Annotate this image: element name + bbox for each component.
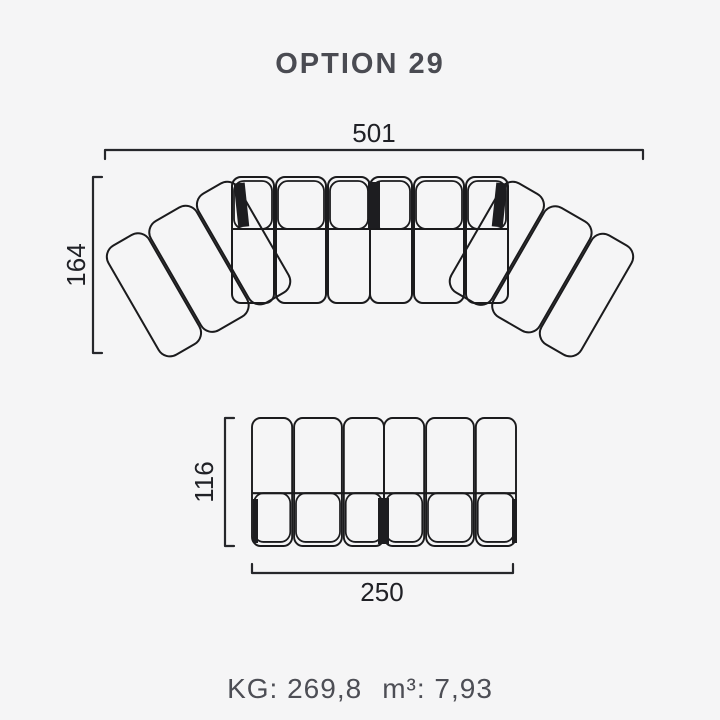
weight-volume-footer: KG: 269,8 m³: 7,93	[0, 673, 720, 705]
dimension-label: 116	[189, 461, 219, 502]
module-junction-panel	[378, 498, 389, 544]
straight-sofa-top-view	[252, 418, 517, 546]
module-right	[384, 418, 516, 546]
dimension-label: 164	[61, 243, 91, 286]
center-module-left	[232, 177, 370, 303]
dimension-label: 250	[360, 577, 403, 607]
module-edge-panel	[512, 499, 517, 543]
module-junction-panel	[368, 182, 380, 228]
module-junction-panel	[492, 182, 508, 227]
module-junction-panel	[234, 182, 250, 227]
sectional-sofa-top-view	[102, 177, 638, 361]
module-left	[252, 418, 384, 546]
dimension-width-501: 501	[105, 118, 643, 159]
left-wing-module	[102, 177, 295, 361]
right-wing-module	[445, 177, 638, 361]
spec-sheet-page: OPTION 29	[0, 0, 720, 720]
volume-value: m³: 7,93	[382, 673, 493, 705]
weight-value: KG: 269,8	[227, 673, 362, 705]
center-module-right	[370, 177, 508, 303]
dimension-depth-164: 164	[61, 177, 102, 353]
dimension-label: 501	[352, 118, 395, 148]
module-edge-panel	[253, 499, 258, 543]
sofa-dimension-diagram: 501 164 116 250	[0, 0, 720, 720]
dimension-width-250: 250	[252, 564, 513, 607]
dimension-depth-116: 116	[189, 418, 234, 546]
